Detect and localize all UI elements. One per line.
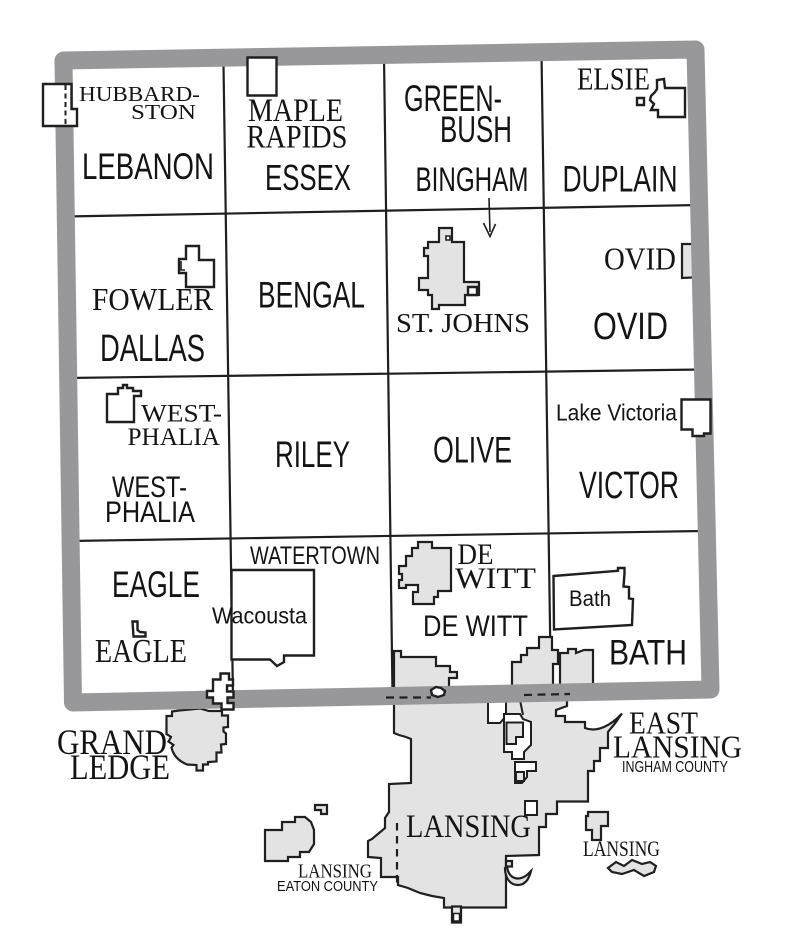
svg-text:Lake Victoria: Lake Victoria: [556, 400, 678, 426]
svg-text:BATH: BATH: [609, 632, 687, 672]
svg-text:WATERTOWN: WATERTOWN: [250, 542, 380, 570]
svg-text:DE WITT: DE WITT: [423, 609, 528, 642]
svg-text:BINGHAM: BINGHAM: [416, 161, 529, 199]
svg-text:PHALIA: PHALIA: [105, 495, 195, 529]
svg-text:FOWLER: FOWLER: [92, 282, 213, 317]
svg-text:DALLAS: DALLAS: [100, 328, 205, 370]
svg-text:OVID: OVID: [593, 306, 668, 348]
svg-text:BUSH: BUSH: [440, 108, 512, 150]
svg-text:ST. JOHNS: ST. JOHNS: [396, 308, 530, 338]
svg-text:Bath: Bath: [569, 587, 611, 611]
svg-text:LANSING: LANSING: [298, 860, 372, 882]
svg-text:LEDGE: LEDGE: [70, 748, 170, 788]
svg-text:ELSIE: ELSIE: [577, 62, 650, 97]
svg-text:OLIVE: OLIVE: [433, 429, 512, 470]
svg-text:STON: STON: [131, 101, 196, 125]
svg-text:Wacousta: Wacousta: [212, 603, 308, 629]
svg-text:RAPIDS: RAPIDS: [247, 119, 348, 155]
svg-text:WITT: WITT: [455, 561, 536, 595]
svg-text:PHALIA: PHALIA: [128, 424, 220, 451]
svg-text:LANSING: LANSING: [406, 808, 531, 844]
svg-text:VICTOR: VICTOR: [579, 463, 679, 506]
svg-text:ESSEX: ESSEX: [265, 158, 351, 198]
svg-text:EAGLE: EAGLE: [95, 631, 187, 669]
svg-text:WEST-: WEST-: [141, 400, 222, 428]
svg-text:LANSING: LANSING: [583, 837, 660, 861]
svg-text:BENGAL: BENGAL: [258, 274, 365, 315]
svg-text:OVID: OVID: [604, 241, 676, 277]
svg-text:EAGLE: EAGLE: [112, 564, 200, 605]
svg-text:LEBANON: LEBANON: [82, 145, 214, 187]
svg-text:LANSING: LANSING: [613, 729, 742, 764]
svg-text:DUPLAIN: DUPLAIN: [563, 158, 678, 199]
svg-text:RILEY: RILEY: [275, 433, 350, 475]
